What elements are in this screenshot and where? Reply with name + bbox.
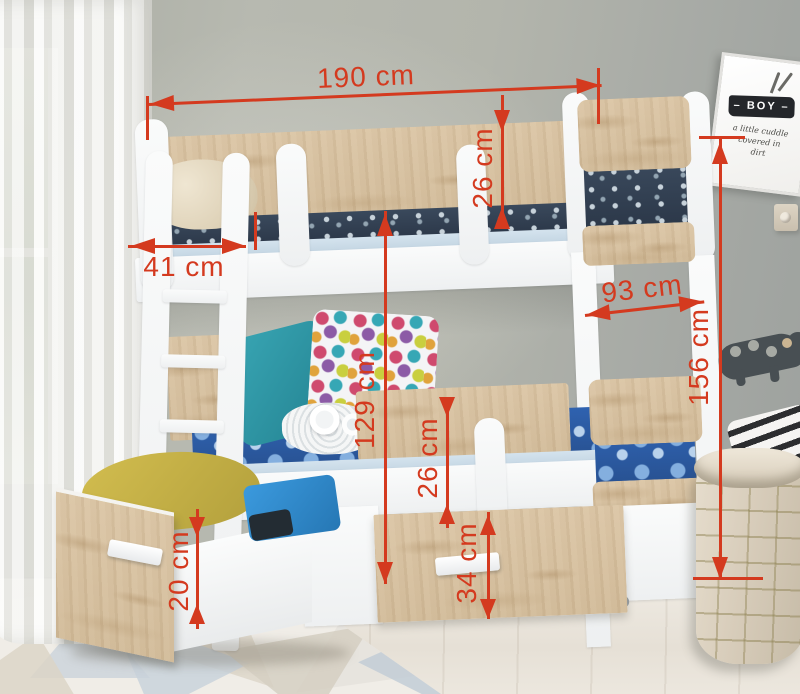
extension-tick	[693, 577, 763, 580]
wall-hook	[774, 204, 798, 231]
left-drawer-front	[56, 487, 174, 662]
crocodile-wood-dot	[782, 338, 792, 348]
dimension-label: 41 cm	[114, 252, 254, 282]
dimension-label: 190 cm	[295, 59, 436, 95]
laundry-basket	[694, 412, 800, 668]
dimension-label: 156 cm	[684, 297, 714, 417]
lower-bunk-guard-rail	[355, 383, 571, 461]
top-end-slat-upper	[577, 96, 692, 172]
dimension-label: 20 cm	[164, 516, 194, 626]
arrow-left-icon	[147, 95, 175, 112]
right-drawer-front	[373, 505, 627, 623]
dimension-line	[719, 139, 722, 579]
extension-tick	[699, 136, 745, 139]
feather-icon	[778, 72, 794, 91]
crocodile-hole	[748, 340, 759, 351]
room-scene: – BOY – a little cuddle covered in dirt	[0, 0, 800, 694]
dimension-line	[384, 211, 387, 584]
arrow-up-icon	[377, 211, 393, 236]
dimension-label: 34 cm	[452, 508, 482, 618]
arrow-up-icon	[480, 512, 496, 535]
ladder-rung	[160, 419, 224, 433]
extension-tick	[146, 96, 149, 140]
dimension-label: 129 cm	[350, 335, 380, 465]
arrow-up-icon	[712, 139, 728, 164]
top-end-bedding	[584, 162, 689, 232]
basket-rim	[694, 448, 800, 488]
top-end-slat-lower	[582, 222, 696, 266]
crocodile-hole	[766, 346, 777, 357]
arrow-down-icon	[480, 599, 496, 622]
wall-hook-knob	[780, 212, 791, 223]
ladder-rung	[163, 289, 227, 303]
crocodile-leg	[769, 366, 780, 383]
dimension-label: 26 cm	[413, 403, 443, 513]
dimension-label: 26 cm	[468, 113, 498, 223]
arrow-down-icon	[377, 562, 393, 587]
poster-banner: – BOY –	[728, 95, 795, 118]
extension-tick	[254, 212, 257, 250]
extension-tick	[597, 68, 600, 124]
top-rail-support	[275, 143, 310, 266]
ladder-rung	[161, 354, 225, 368]
